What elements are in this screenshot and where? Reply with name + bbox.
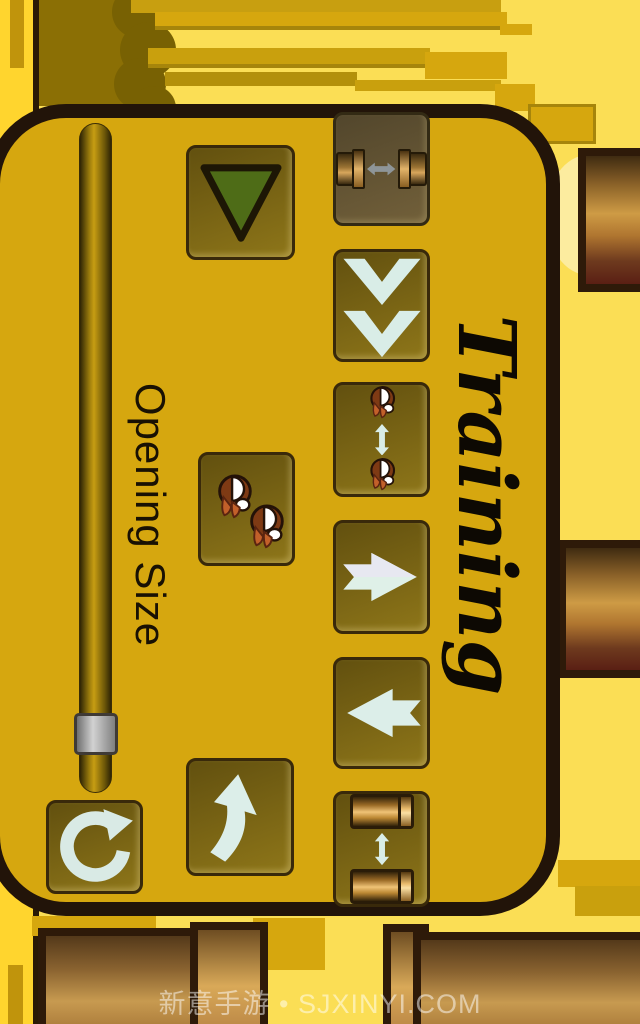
bird-vertical-gap-button[interactable] <box>333 382 430 497</box>
bg-step-bar <box>558 860 640 887</box>
bird-icon <box>362 385 402 422</box>
arrow-left-icon <box>341 684 423 742</box>
bg-step-bar <box>575 886 640 916</box>
bg-step-bar <box>165 72 357 86</box>
curved-up-arrow-icon <box>201 770 279 864</box>
opening-size-slider-track[interactable] <box>79 123 112 793</box>
horizontal-double-arrow-icon <box>367 159 395 179</box>
green-down-triangle-icon <box>197 157 285 249</box>
double-chevron-down-icon <box>338 253 426 359</box>
bg-step-bar <box>425 52 507 79</box>
two-birds-button[interactable] <box>198 452 295 566</box>
pipe-end-icon <box>336 152 363 186</box>
pipe-end-icon <box>400 152 427 186</box>
watermark: 新意手游 • SJXINYI.COM <box>0 982 640 1021</box>
bird-icon <box>362 457 402 494</box>
pipe-horizontal-gap-button[interactable] <box>333 112 430 226</box>
circular-arrow-icon <box>55 807 135 887</box>
bg-strip-mark <box>10 0 24 68</box>
opening-size-label: Opening Size <box>128 360 172 670</box>
bg-pipe <box>558 540 640 678</box>
bird-icon <box>243 503 289 553</box>
flap-up-button[interactable] <box>186 758 294 876</box>
move-left-button[interactable] <box>333 657 430 769</box>
speed-down-button[interactable] <box>186 145 295 260</box>
bg-step-bar <box>148 48 430 68</box>
scroll-down-button[interactable] <box>333 249 430 362</box>
move-right-button[interactable] <box>333 520 430 634</box>
opening-size-slider-handle[interactable] <box>74 713 118 755</box>
pipe-vertical-gap-button[interactable] <box>333 791 430 907</box>
page-title: Training <box>437 280 537 730</box>
bg-step-bar <box>355 80 501 91</box>
pipe-shell-icon <box>350 869 414 904</box>
bg-step-bar <box>155 12 507 30</box>
reset-button[interactable] <box>46 800 143 894</box>
bg-pipe <box>578 148 640 292</box>
game-screen: Opening Size Training <box>0 0 640 1024</box>
arrow-right-icon <box>341 548 423 606</box>
vertical-double-arrow-icon <box>372 833 392 865</box>
bg-step-bar <box>500 24 532 35</box>
vertical-double-arrow-icon <box>373 424 391 456</box>
pipe-shell-icon <box>350 794 414 829</box>
